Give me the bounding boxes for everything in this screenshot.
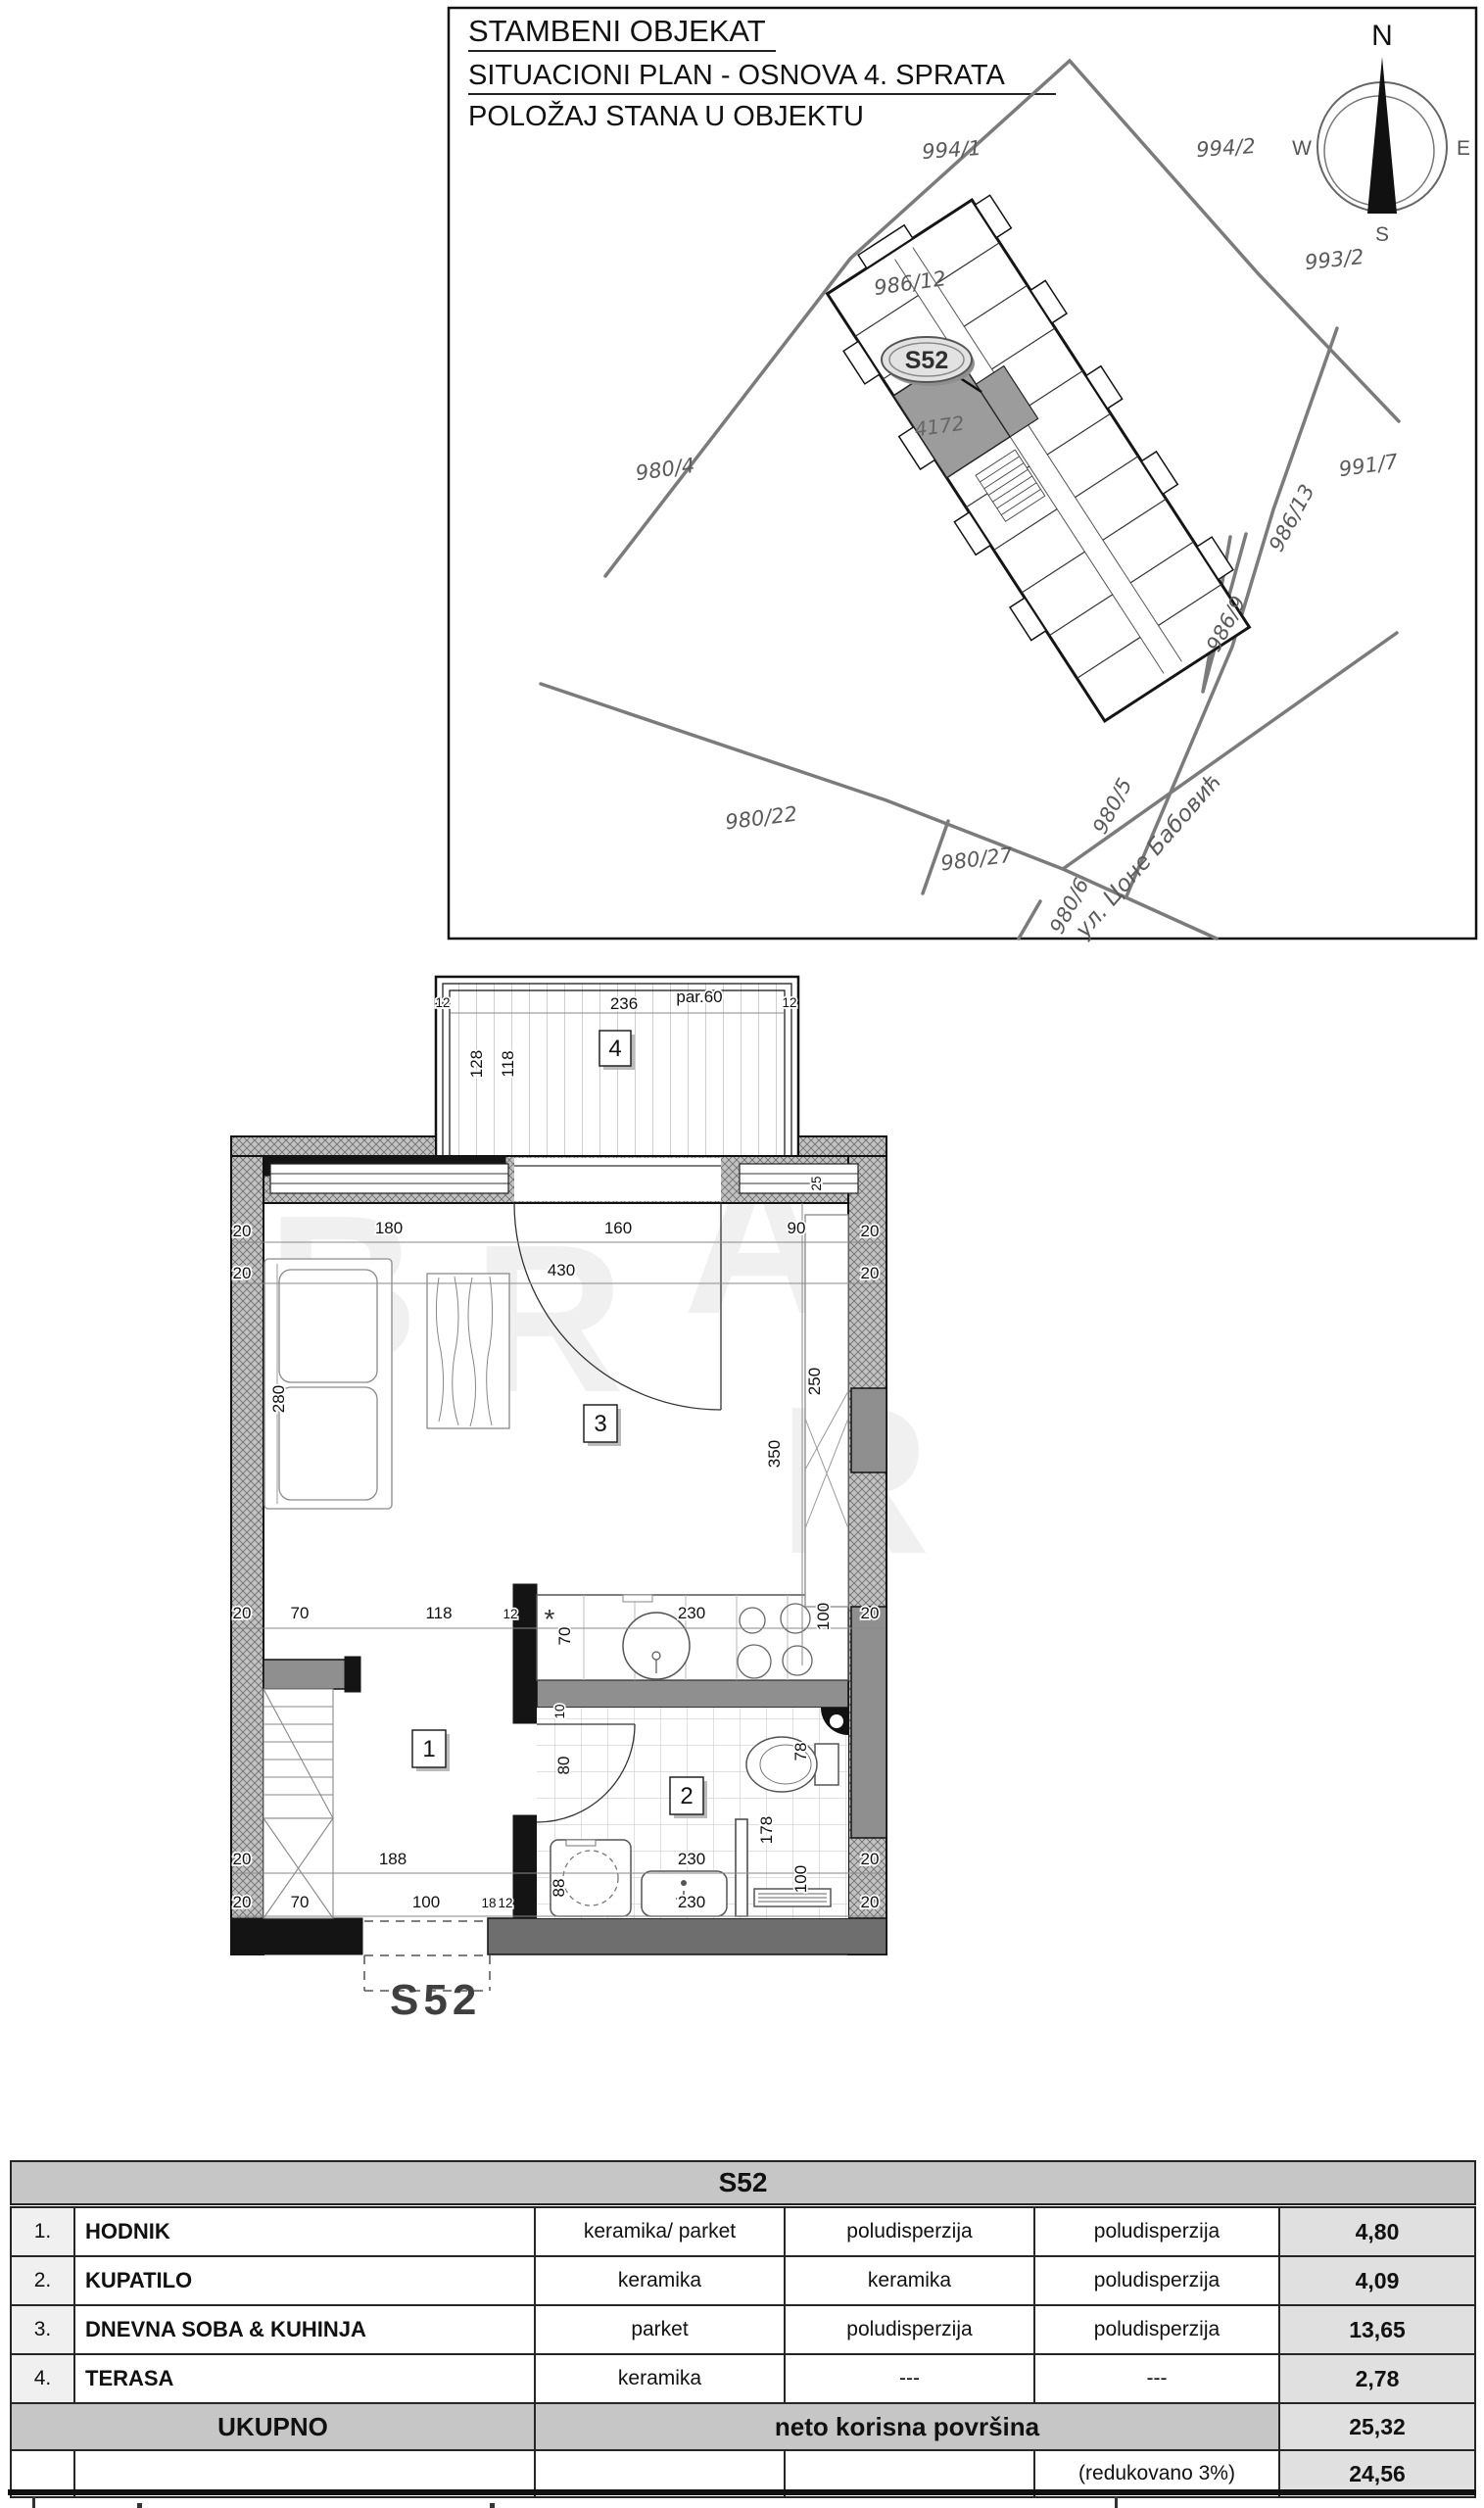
dim-label: 78 bbox=[791, 1743, 810, 1761]
room-area: 4,80 bbox=[1279, 2206, 1475, 2257]
row-number: 1. bbox=[11, 2206, 74, 2257]
room-label-1: 1 bbox=[412, 1730, 450, 1771]
table-header-row: S52 bbox=[11, 2161, 1475, 2206]
room-area: 4,09 bbox=[1279, 2256, 1475, 2305]
table-row: 3. DNEVNA SOBA & KUHINJA parket poludisp… bbox=[11, 2305, 1475, 2354]
dim-label: 25 bbox=[809, 1176, 824, 1190]
cut-off-text bbox=[137, 2503, 142, 2508]
dim-label: 100 bbox=[791, 1865, 810, 1893]
svg-text:2: 2 bbox=[680, 1783, 693, 1809]
dim-label: par.60 bbox=[676, 988, 722, 1006]
dim-label: 20 bbox=[861, 1264, 880, 1282]
dim-label: 20 bbox=[861, 1604, 880, 1622]
total-row: UKUPNO neto korisna površina 25,32 bbox=[11, 2403, 1475, 2450]
dim-label: 12 bbox=[498, 1896, 512, 1910]
cut-off-text bbox=[490, 2503, 495, 2508]
shelf-right bbox=[805, 1215, 848, 1607]
hall-closet bbox=[263, 1689, 333, 1918]
parcel-label: 994/2 bbox=[1195, 134, 1256, 162]
table-header-title: S52 bbox=[11, 2161, 1475, 2206]
dim-label: 188 bbox=[379, 1850, 407, 1868]
dim-label: 20 bbox=[233, 1893, 252, 1911]
total-label: UKUPNO bbox=[11, 2403, 535, 2450]
dim-label: 250 bbox=[805, 1368, 824, 1395]
next-table-divider bbox=[1115, 2496, 1118, 2508]
floor-plan-drawing: BRAR bbox=[0, 965, 1484, 2052]
floor-finish: parket bbox=[535, 2305, 785, 2354]
dim-label: 160 bbox=[604, 1219, 632, 1237]
dim-label: 70 bbox=[291, 1604, 310, 1622]
floor-finish: keramika bbox=[535, 2354, 785, 2403]
compass-north-label: N bbox=[1371, 20, 1393, 52]
kitchen-sink bbox=[623, 1613, 690, 1679]
wall-finish: poludisperzija bbox=[785, 2206, 1034, 2257]
parcel-label: 994/1 bbox=[921, 136, 981, 164]
wall-finish: --- bbox=[785, 2354, 1034, 2403]
plan-sheet-page: STAMBENI OBJEKAT SITUACIONI PLAN - OSNOV… bbox=[0, 0, 1484, 2508]
row-number: 4. bbox=[11, 2354, 74, 2403]
dim-label: 10 bbox=[552, 1704, 567, 1718]
total-area: 25,32 bbox=[1279, 2403, 1475, 2450]
dim-label: 230 bbox=[678, 1604, 705, 1622]
table-row: 4. TERASA keramika --- --- 2,78 bbox=[11, 2354, 1475, 2403]
washing-machine bbox=[551, 1840, 631, 1916]
compass-west-label: W bbox=[1292, 137, 1312, 160]
floor-finish: keramika/ parket bbox=[535, 2206, 785, 2257]
ceiling-finish: poludisperzija bbox=[1034, 2305, 1279, 2354]
compass-south-label: S bbox=[1375, 223, 1389, 246]
wardrobe bbox=[427, 1274, 509, 1428]
section-divider bbox=[8, 2489, 1476, 2495]
dim-label: 118 bbox=[499, 1050, 517, 1077]
row-number: 3. bbox=[11, 2305, 74, 2354]
dim-label: 20 bbox=[861, 1850, 880, 1868]
dim-label: 70 bbox=[555, 1627, 574, 1646]
page-title: STAMBENI OBJEKAT bbox=[468, 14, 766, 48]
room-name: KUPATILO bbox=[74, 2256, 535, 2305]
table-row: 1. HODNIK keramika/ parket poludisperzij… bbox=[11, 2206, 1475, 2257]
dim-label: 178 bbox=[757, 1816, 776, 1844]
table-row: 2. KUPATILO keramika keramika poludisper… bbox=[11, 2256, 1475, 2305]
wall-finish: poludisperzija bbox=[785, 2305, 1034, 2354]
floor-finish: keramika bbox=[535, 2256, 785, 2305]
next-table-border bbox=[32, 2496, 35, 2508]
dim-label: 230 bbox=[678, 1850, 705, 1868]
wall-finish: keramika bbox=[785, 2256, 1034, 2305]
dim-label: 90 bbox=[788, 1219, 806, 1237]
dim-label: 118 bbox=[425, 1604, 452, 1622]
room-area: 13,65 bbox=[1279, 2305, 1475, 2354]
ceiling-finish: --- bbox=[1034, 2354, 1279, 2403]
dim-label: 88 bbox=[550, 1879, 568, 1898]
window-180 bbox=[270, 1164, 508, 1193]
dim-label: 128 bbox=[467, 1050, 486, 1078]
window-90 bbox=[740, 1164, 858, 1193]
room-name: DNEVNA SOBA & KUHINJA bbox=[74, 2305, 535, 2354]
room-label-3: 3 bbox=[584, 1405, 621, 1446]
room-name: TERASA bbox=[74, 2354, 535, 2403]
ceiling-finish: poludisperzija bbox=[1034, 2206, 1279, 2257]
star-symbol: * bbox=[545, 1604, 555, 1634]
total-description: neto korisna površina bbox=[535, 2403, 1279, 2450]
compass-east-label: E bbox=[1457, 137, 1470, 160]
dim-label: 20 bbox=[861, 1222, 880, 1240]
dim-label: 280 bbox=[269, 1385, 288, 1413]
dim-label: 236 bbox=[610, 994, 638, 1013]
dim-label: 20 bbox=[233, 1264, 252, 1282]
page-subtitle-2: POLOŽAJ STANA U OBJEKTU bbox=[468, 100, 864, 132]
svg-text:4: 4 bbox=[608, 1036, 621, 1062]
dim-label: 70 bbox=[291, 1893, 310, 1911]
unit-badge-label: S52 bbox=[905, 347, 948, 374]
dim-label: 12 bbox=[503, 1607, 517, 1621]
dim-label: 20 bbox=[233, 1222, 252, 1240]
dim-label: 20 bbox=[233, 1850, 252, 1868]
dim-label: 20 bbox=[233, 1604, 252, 1622]
sofa bbox=[264, 1259, 392, 1509]
dim-label: 100 bbox=[412, 1893, 440, 1911]
ceiling-finish: poludisperzija bbox=[1034, 2256, 1279, 2305]
dim-label: 18 bbox=[481, 1896, 496, 1910]
row-number: 2. bbox=[11, 2256, 74, 2305]
dim-label: 430 bbox=[548, 1261, 575, 1279]
dim-label: 20 bbox=[861, 1893, 880, 1911]
dim-label: 80 bbox=[554, 1757, 573, 1775]
dim-label: 12 bbox=[435, 995, 450, 1010]
room-area: 2,78 bbox=[1279, 2354, 1475, 2403]
room-name: HODNIK bbox=[74, 2206, 535, 2257]
room-label-4: 4 bbox=[599, 1031, 635, 1070]
room-label-2: 2 bbox=[670, 1777, 707, 1818]
dim-label: 350 bbox=[765, 1440, 784, 1468]
page-subtitle: SITUACIONI PLAN - OSNOVA 4. SPRATA bbox=[468, 60, 1006, 91]
party-wall-segment bbox=[851, 1388, 886, 1472]
area-table: S52 1. HODNIK keramika/ parket poludispe… bbox=[10, 2160, 1476, 2498]
dim-label: 100 bbox=[814, 1603, 833, 1630]
svg-text:1: 1 bbox=[422, 1736, 435, 1762]
dim-label: 230 bbox=[678, 1893, 705, 1911]
dim-label: 180 bbox=[375, 1219, 403, 1237]
dim-label: 12 bbox=[782, 995, 796, 1010]
apartment-label: S52 bbox=[390, 1976, 481, 2024]
svg-text:3: 3 bbox=[594, 1411, 606, 1437]
site-plan-drawing: STAMBENI OBJEKAT SITUACIONI PLAN - OSNOV… bbox=[0, 0, 1484, 965]
